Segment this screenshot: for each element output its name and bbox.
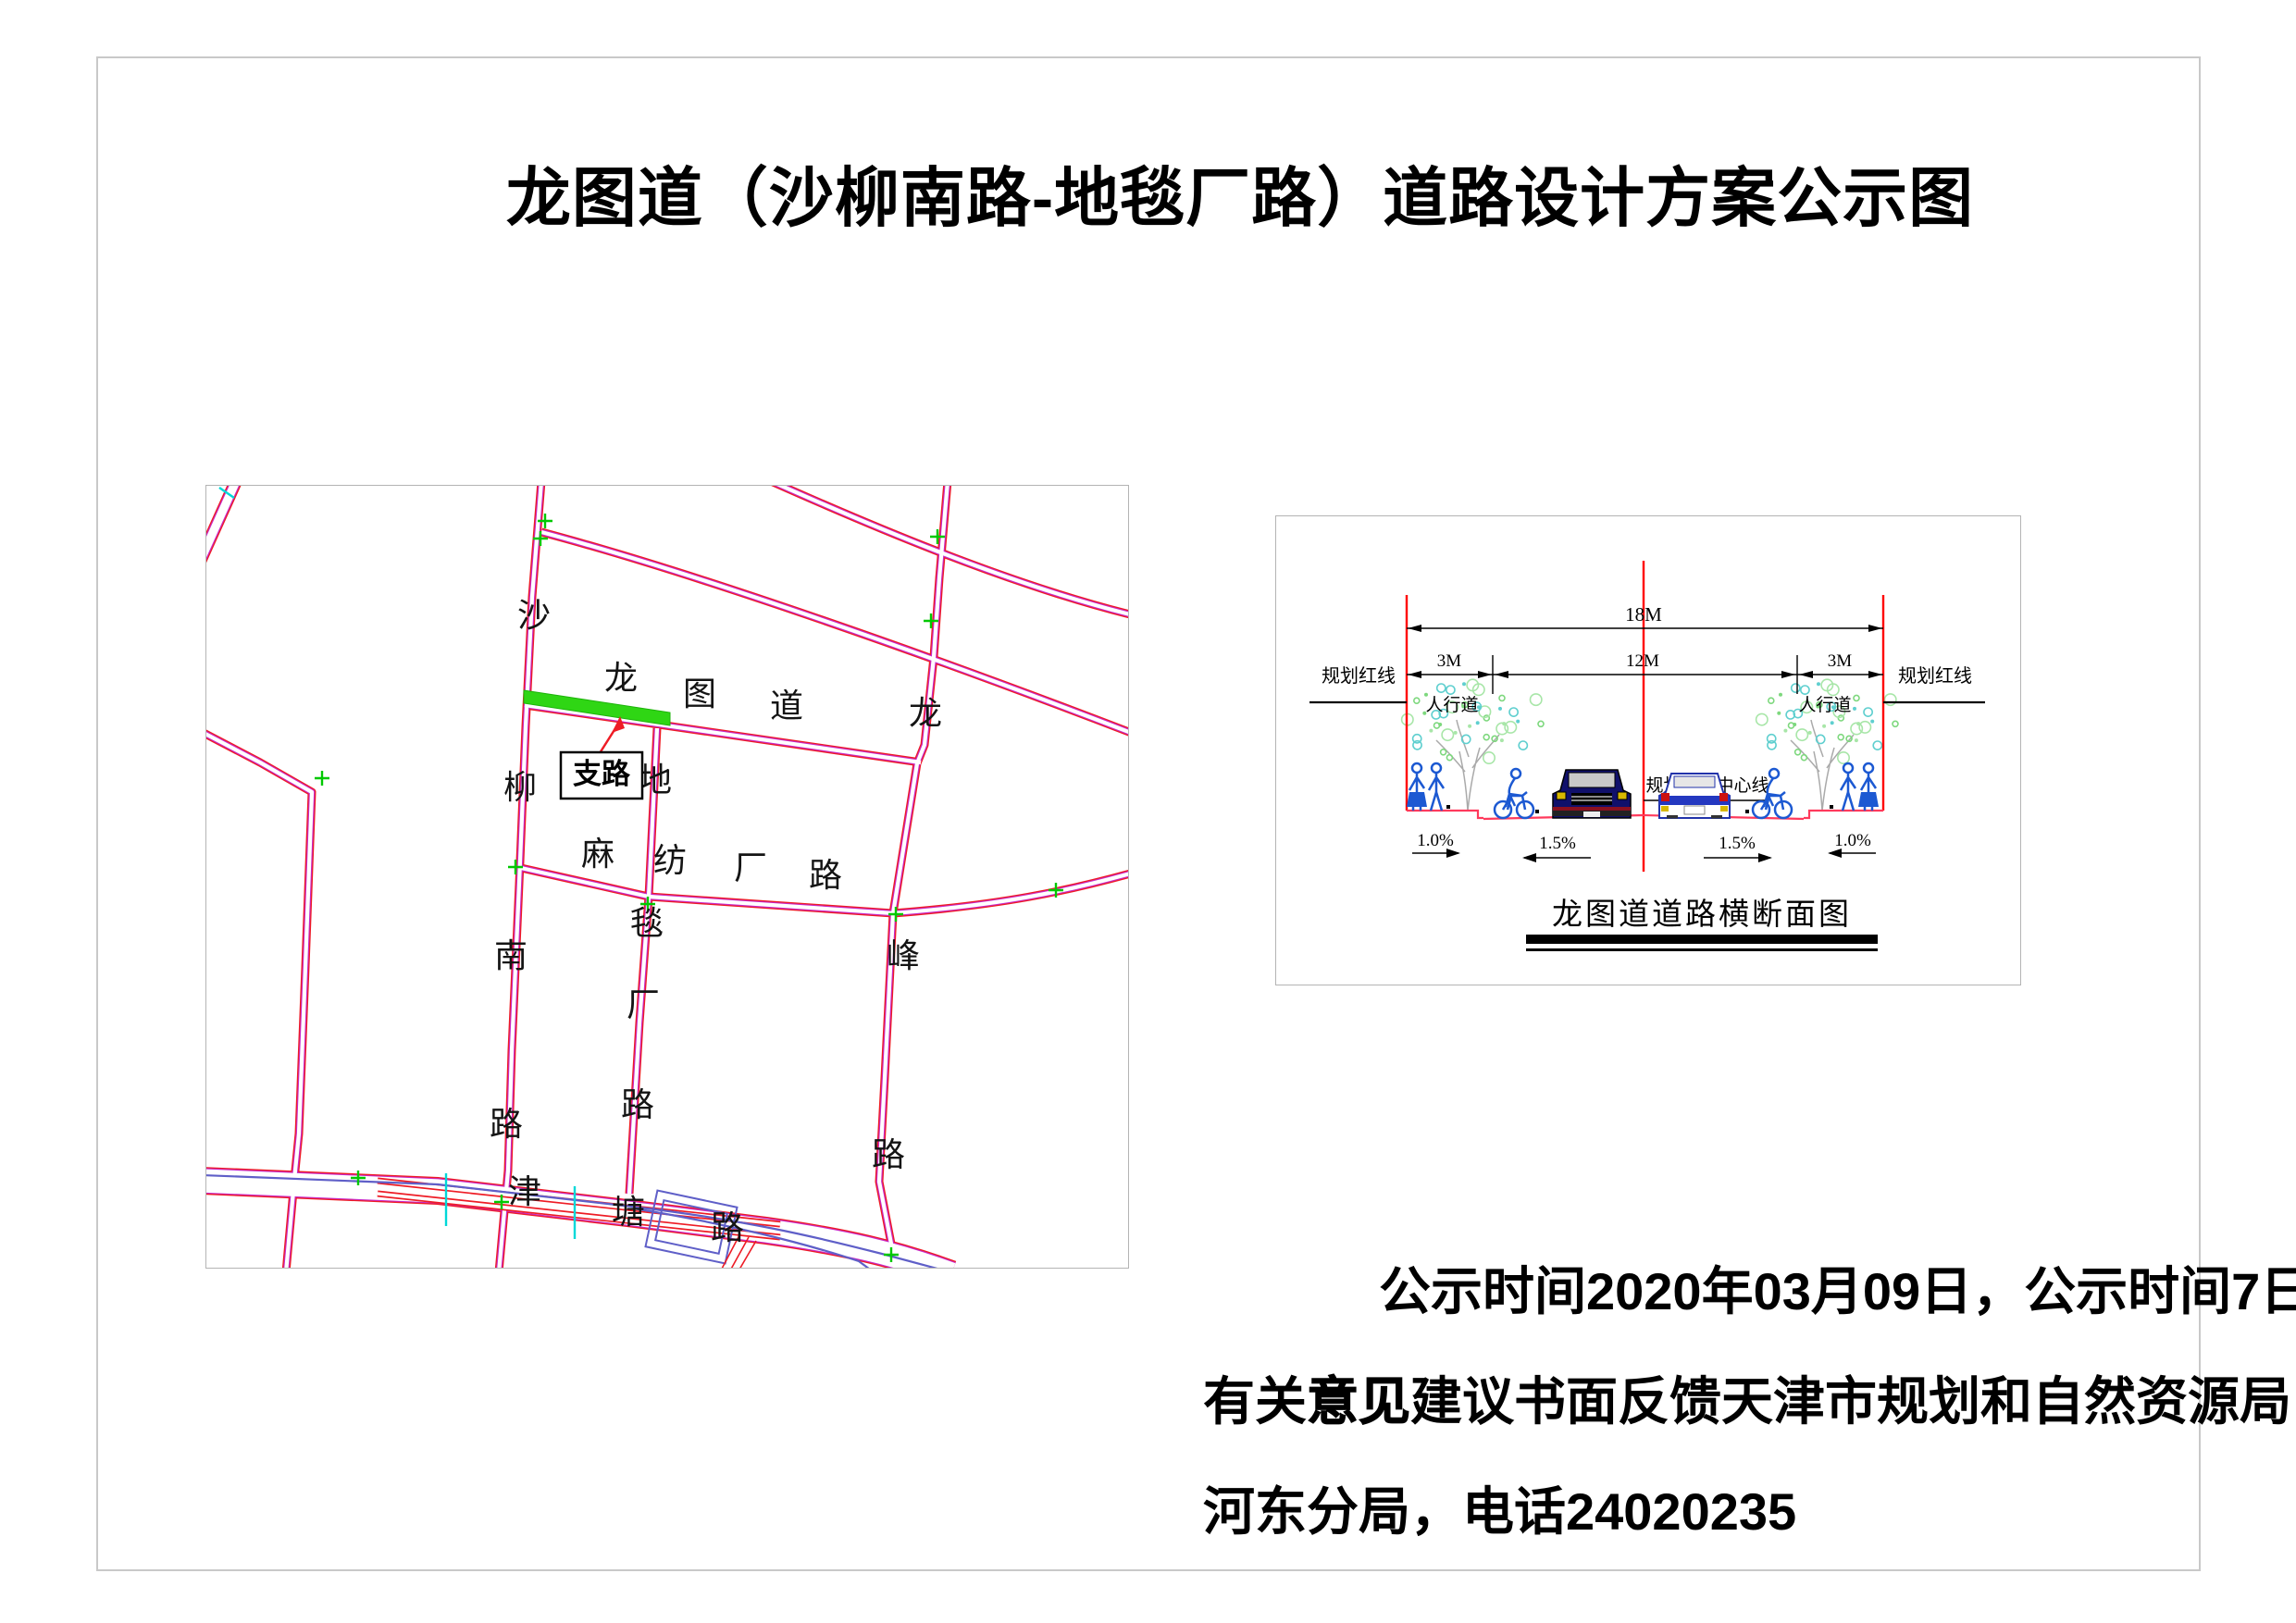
- plus-marker-icon: [315, 771, 329, 786]
- road-name-char: 南: [494, 937, 527, 974]
- road-name-char: 纺: [653, 842, 687, 879]
- cross-section-caption: 龙图道道路横断面图: [1552, 898, 1852, 932]
- dim-text-3m-left: 3M: [1437, 651, 1462, 671]
- dim-text-18m: 18M: [1625, 603, 1662, 626]
- caption-underline-thick: [1526, 935, 1878, 944]
- road-name-char: 路: [490, 1106, 523, 1143]
- road-name-char: 沙: [517, 597, 551, 634]
- road-name-char: 图: [683, 675, 716, 712]
- road-name-char: 塘: [612, 1194, 645, 1231]
- road-name-labels: 沙柳南路龙图道龙峰路地毯厂路麻纺厂路津塘路: [490, 597, 942, 1246]
- road-name-char: 柳: [503, 769, 537, 806]
- slope-right-walk: 1.0%: [1834, 831, 1871, 850]
- car-front-view: [1553, 770, 1631, 818]
- label-redline-left: 规划红线: [1322, 665, 1396, 687]
- road-name-char: 厂: [627, 986, 660, 1023]
- slope-right-lane: 1.5%: [1719, 834, 1756, 853]
- road-name-char: 龙: [604, 660, 638, 697]
- notice-text: 公示时间2020年03月09日，公示时间7日， 有关意见建议书面反馈天津市规划和…: [1203, 1236, 2277, 1567]
- road-name-char: 路: [711, 1209, 744, 1246]
- notice-line-1: 公示时间2020年03月09日，公示时间7日，: [1203, 1236, 2277, 1346]
- ground-line: [1407, 811, 1883, 819]
- cross-section-panel: 18M 3M 12M 3M 规划红线 规划红线 人行道 人行道 规划道路中心线: [1275, 515, 2021, 985]
- notice-line-3: 河东分局，电话24020235: [1203, 1456, 2277, 1567]
- dim-text-12m: 12M: [1626, 651, 1659, 671]
- road-name-char: 厂: [734, 849, 767, 886]
- page-title: 龙图道（沙柳南路-地毯厂路）道路设计方案公示图: [407, 146, 2073, 240]
- location-map-panel: 沙柳南路龙图道龙峰路地毯厂路麻纺厂路津塘路 支路: [205, 485, 1129, 1269]
- label-sidewalk-left: 人行道: [1425, 695, 1478, 715]
- road-name-char: 峰: [887, 937, 920, 974]
- road-name-char: 路: [809, 857, 842, 894]
- caption-underline-thin: [1526, 948, 1878, 951]
- slope-left-lane: 1.5%: [1539, 834, 1576, 853]
- slope-left-walk: 1.0%: [1417, 831, 1454, 850]
- road-name-char: 路: [872, 1136, 905, 1173]
- car-rear-view: [1659, 774, 1730, 819]
- road-name-char: 道: [770, 688, 803, 725]
- road-name-char: 麻: [581, 836, 614, 873]
- label-sidewalk-right: 人行道: [1798, 695, 1851, 715]
- road-name-char: 毯: [630, 905, 664, 942]
- road-name-char: 津: [508, 1173, 541, 1210]
- location-map: 沙柳南路龙图道龙峰路地毯厂路麻纺厂路津塘路 支路: [206, 486, 1128, 1268]
- notice-page: 龙图道（沙柳南路-地毯厂路）道路设计方案公示图: [0, 0, 2296, 1623]
- dim-text-3m-right: 3M: [1828, 651, 1853, 671]
- notice-line-2: 有关意见建议书面反馈天津市规划和自然资源局: [1203, 1346, 2277, 1456]
- cross-section-diagram: 18M 3M 12M 3M 规划红线 规划红线 人行道 人行道 规划道路中心线: [1276, 516, 2020, 985]
- callout-label: 支路: [573, 758, 631, 790]
- notice-emphasis: 意见: [1307, 1372, 1410, 1431]
- callout-zhilu: 支路: [561, 716, 642, 799]
- intersection-markers: [315, 514, 1063, 1262]
- road-name-char: 路: [621, 1086, 654, 1123]
- road-name-char: 龙: [909, 695, 942, 732]
- road-name-char: 地: [639, 762, 672, 799]
- label-redline-right: 规划红线: [1898, 665, 1972, 687]
